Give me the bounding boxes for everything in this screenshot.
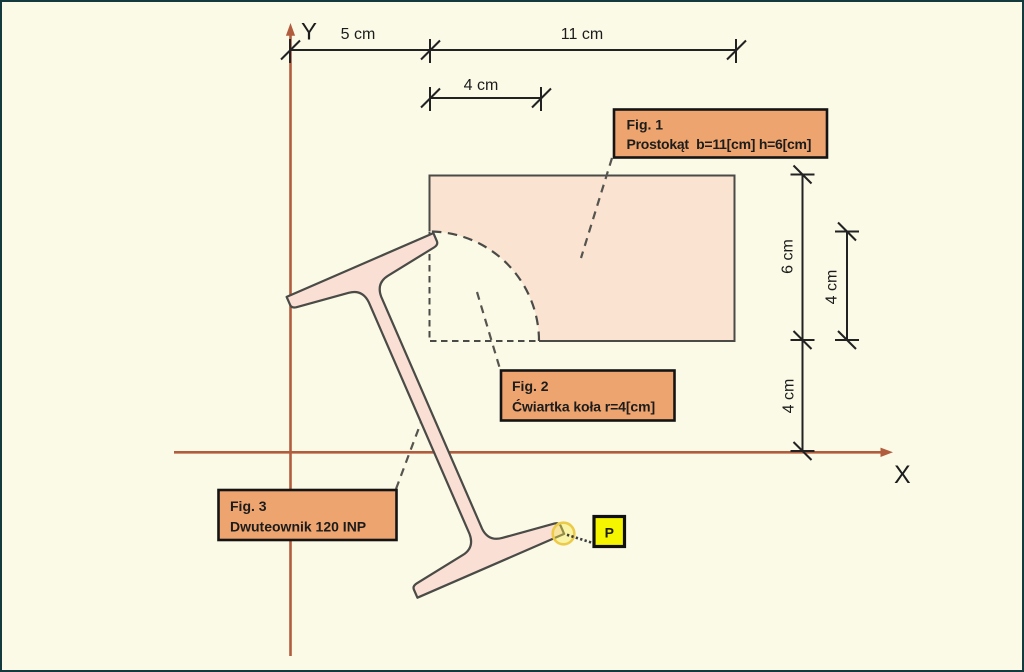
svg-text:Fig. 3: Fig. 3 (230, 498, 267, 514)
svg-text:P: P (605, 525, 614, 541)
svg-text:4 cm: 4 cm (464, 77, 499, 94)
svg-text:5 cm: 5 cm (341, 26, 376, 43)
svg-text:X: X (894, 461, 911, 489)
svg-text:11 cm: 11 cm (561, 26, 603, 43)
svg-text:Fig. 1: Fig. 1 (627, 117, 664, 133)
svg-text:Fig. 2: Fig. 2 (512, 378, 549, 394)
svg-text:Dwuteownik 120 INP: Dwuteownik 120 INP (230, 519, 366, 535)
svg-text:Ćwiartka koła r=4[cm]: Ćwiartka koła r=4[cm] (512, 398, 655, 415)
svg-text:4 cm: 4 cm (824, 270, 841, 305)
svg-text:6 cm: 6 cm (780, 239, 797, 274)
svg-text:Y: Y (301, 19, 317, 46)
svg-text:4 cm: 4 cm (781, 379, 798, 414)
svg-text:Prostokąt b=11[cm] h=6[cm]: Prostokąt b=11[cm] h=6[cm] (627, 136, 812, 152)
